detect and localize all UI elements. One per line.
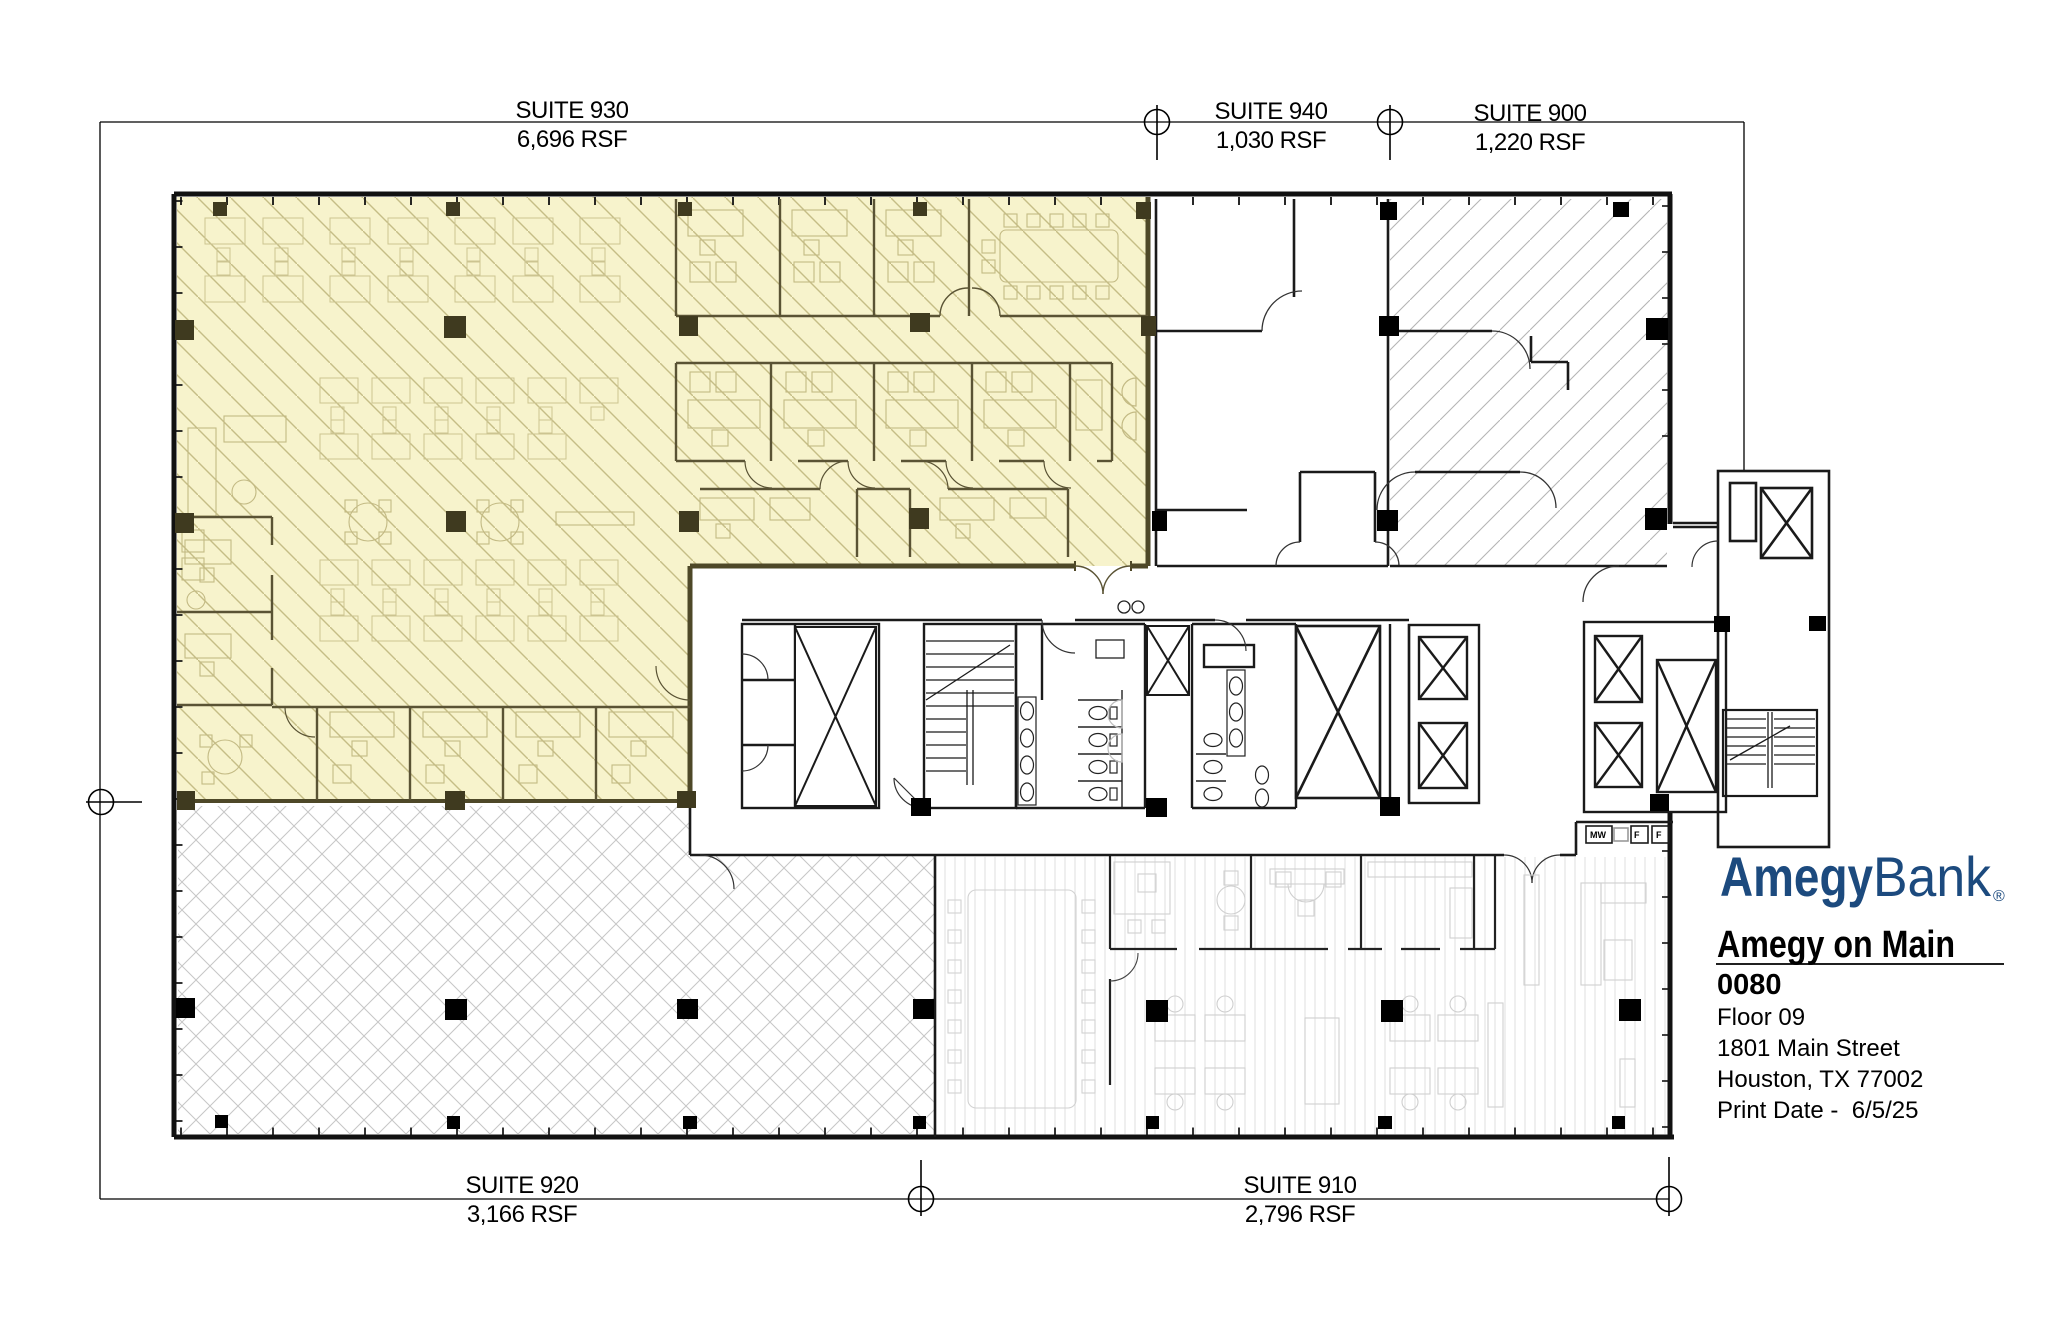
- svg-text:0080: 0080: [1717, 969, 1782, 1001]
- svg-text:®: ®: [1993, 888, 2005, 905]
- svg-text:Bank: Bank: [1873, 845, 1992, 908]
- svg-text:F: F: [1634, 830, 1640, 840]
- svg-text:2,796 RSF: 2,796 RSF: [1245, 1201, 1355, 1228]
- svg-text:F: F: [1656, 830, 1662, 840]
- svg-text:SUITE 930: SUITE 930: [516, 97, 629, 124]
- svg-text:SUITE 900: SUITE 900: [1474, 100, 1587, 127]
- svg-text:SUITE 940: SUITE 940: [1215, 98, 1328, 125]
- svg-text:SUITE 920: SUITE 920: [466, 1172, 579, 1199]
- svg-text:Houston, TX 77002: Houston, TX 77002: [1717, 1066, 1923, 1093]
- svg-text:3,166 RSF: 3,166 RSF: [467, 1201, 577, 1228]
- svg-text:1,220 RSF: 1,220 RSF: [1475, 129, 1585, 156]
- svg-text:Print Date - 6/5/25: Print Date - 6/5/25: [1717, 1097, 1918, 1124]
- svg-text:Floor 09: Floor 09: [1717, 1004, 1805, 1031]
- svg-text:6,696 RSF: 6,696 RSF: [517, 126, 627, 153]
- svg-text:1,030 RSF: 1,030 RSF: [1216, 127, 1326, 154]
- svg-text:MW: MW: [1590, 830, 1606, 840]
- svg-text:1801 Main Street: 1801 Main Street: [1717, 1035, 1900, 1062]
- svg-text:Amegy: Amegy: [1720, 845, 1873, 908]
- svg-text:SUITE 910: SUITE 910: [1244, 1172, 1357, 1199]
- svg-text:Amegy on Main: Amegy on Main: [1717, 924, 1955, 966]
